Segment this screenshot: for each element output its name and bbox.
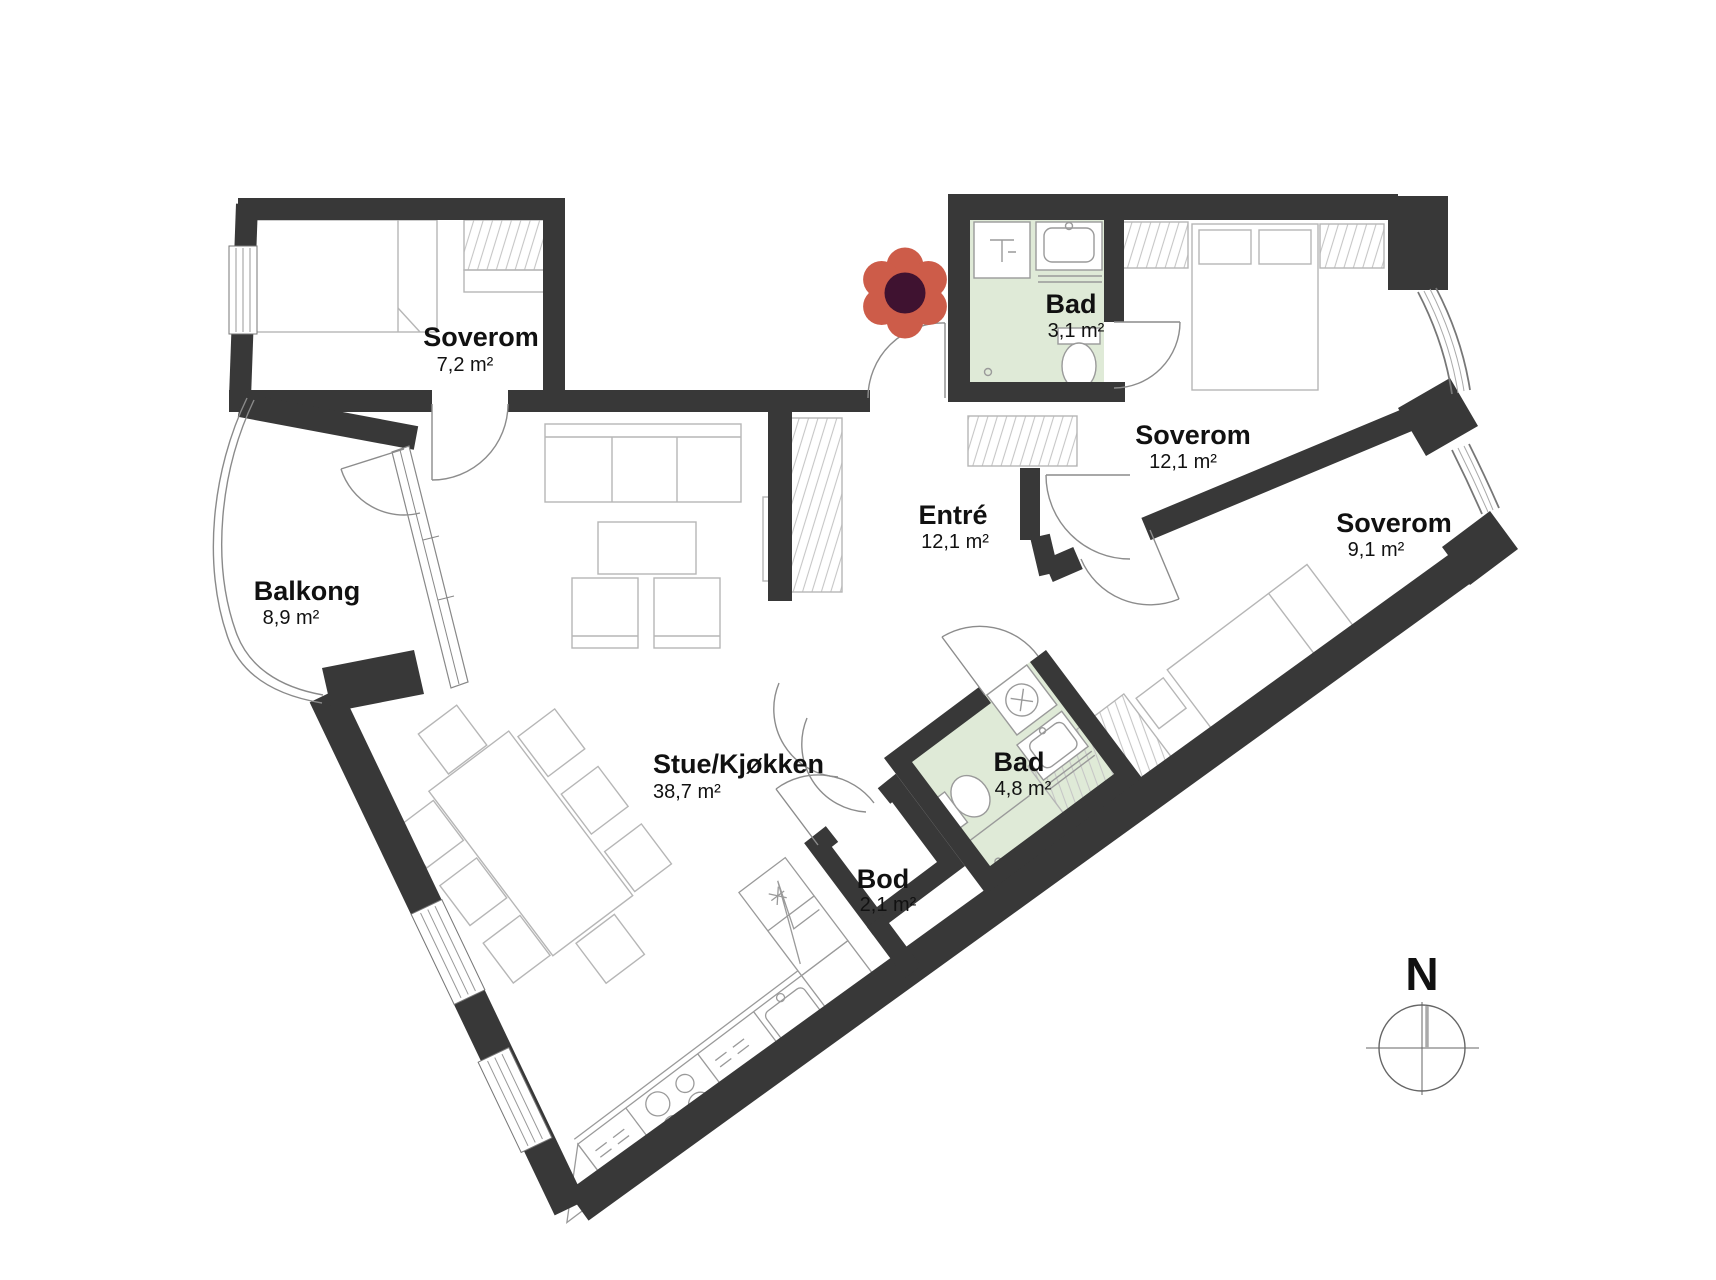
closet	[968, 416, 1077, 466]
window-curved	[1452, 444, 1499, 514]
room-area-entre: 12,1 m²	[921, 531, 989, 553]
washing-machine-icon	[974, 222, 1030, 278]
room-label-bad-nord: Bad	[1045, 289, 1096, 319]
window-curved	[1418, 288, 1470, 394]
door-swing	[1046, 475, 1130, 559]
room-label-bad-sor: Bad	[993, 747, 1044, 777]
room-area-soverom-nw: 7,2 m²	[437, 354, 494, 376]
room-area-soverom-sor: 9,1 m²	[1348, 539, 1405, 561]
floor-plan: N Soverom 7,2 m² Balkong 8,9 m² Stue/Kjø…	[0, 0, 1716, 1280]
window	[478, 1048, 552, 1153]
room-area-balkong: 8,9 m²	[263, 607, 320, 629]
flower-icon	[863, 248, 947, 339]
corner-block	[1398, 378, 1478, 456]
room-area-bad-nord: 3,1 m²	[1048, 320, 1105, 342]
bed	[254, 220, 437, 332]
closet	[791, 418, 842, 592]
coffee-table	[598, 522, 696, 574]
room-label-balkong: Balkong	[254, 576, 361, 606]
wardrobe-shelf	[464, 270, 544, 292]
room-area-bad-sor: 4,8 m²	[995, 778, 1052, 800]
sofa	[545, 424, 741, 502]
corner-block	[322, 650, 424, 712]
room-label-stue: Stue/Kjøkken	[653, 749, 824, 779]
room-area-bod: 2,1 m²	[860, 894, 917, 916]
compass-rose: N	[1366, 948, 1479, 1095]
room-label-soverom-sor: Soverom	[1336, 508, 1452, 538]
floor-plan-svg: N Soverom 7,2 m² Balkong 8,9 m² Stue/Kjø…	[0, 0, 1716, 1280]
balcony-glass-door	[392, 446, 468, 688]
wardrobe	[1120, 222, 1188, 268]
room-area-soverom-ost: 12,1 m²	[1149, 451, 1217, 473]
door-swing	[432, 404, 508, 480]
room-label-bod: Bod	[857, 864, 909, 894]
armchair	[654, 578, 720, 648]
balcony-railing	[213, 398, 323, 703]
double-door-swing	[774, 683, 866, 812]
door-swing	[1114, 322, 1180, 388]
room-label-entre: Entré	[918, 500, 987, 530]
north-label: N	[1405, 948, 1438, 1000]
corner-block	[1388, 196, 1448, 290]
armchair	[572, 578, 638, 648]
room-label-soverom-nw: Soverom	[423, 322, 539, 352]
room-area-stue: 38,7 m²	[653, 781, 721, 803]
door-swing	[1081, 530, 1179, 605]
double-bed	[1192, 224, 1318, 390]
room-label-soverom-ost: Soverom	[1135, 420, 1251, 450]
wardrobe	[1320, 224, 1384, 268]
wardrobe	[464, 220, 544, 270]
window	[229, 246, 257, 334]
